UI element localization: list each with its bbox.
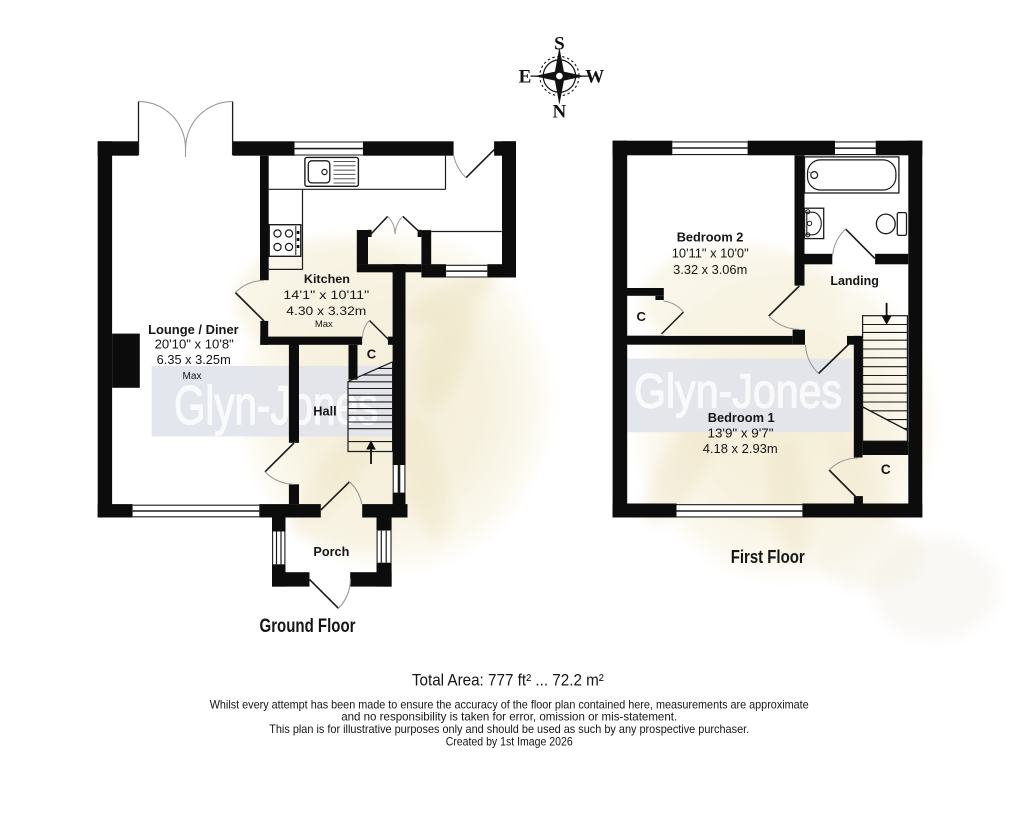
svg-text:4.18 x 2.93m: 4.18 x 2.93m <box>703 441 778 456</box>
svg-text:Max: Max <box>315 319 333 330</box>
svg-text:Total Area: 777 ft² ... 72.2 m: Total Area: 777 ft² ... 72.2 m² <box>412 672 605 690</box>
svg-text:14'1" x 10'11": 14'1" x 10'11" <box>283 288 369 302</box>
svg-text:C: C <box>367 347 377 362</box>
svg-text:First Floor: First Floor <box>731 547 805 567</box>
svg-text:E: E <box>519 67 532 88</box>
svg-text:Kitchen: Kitchen <box>304 274 350 286</box>
svg-text:Hall: Hall <box>313 403 336 418</box>
svg-text:W: W <box>585 67 604 88</box>
svg-text:Landing: Landing <box>830 273 879 288</box>
svg-text:13'9" x 9'7": 13'9" x 9'7" <box>708 426 774 441</box>
svg-text:10'11" x 10'0": 10'11" x 10'0" <box>672 245 749 260</box>
svg-text:6.35 x 3.25m: 6.35 x 3.25m <box>157 352 231 367</box>
svg-text:S: S <box>554 34 565 55</box>
svg-text:4.30 x 3.32m: 4.30 x 3.32m <box>286 304 366 318</box>
svg-text:Max: Max <box>183 371 202 382</box>
svg-text:Bedroom 1: Bedroom 1 <box>708 410 775 425</box>
svg-text:Bedroom 2: Bedroom 2 <box>677 230 744 245</box>
svg-text:C: C <box>881 462 891 477</box>
svg-text:20'10" x 10'8": 20'10" x 10'8" <box>155 337 235 352</box>
svg-text:3.32 x 3.06m: 3.32 x 3.06m <box>673 262 747 277</box>
svg-text:N: N <box>553 102 567 123</box>
svg-text:C: C <box>637 309 647 324</box>
svg-text:Lounge / Diner: Lounge / Diner <box>148 322 239 337</box>
svg-text:Ground Floor: Ground Floor <box>260 615 356 637</box>
svg-text:Porch: Porch <box>313 545 349 559</box>
svg-text:Created by 1st Image 2026: Created by 1st Image 2026 <box>446 734 573 748</box>
